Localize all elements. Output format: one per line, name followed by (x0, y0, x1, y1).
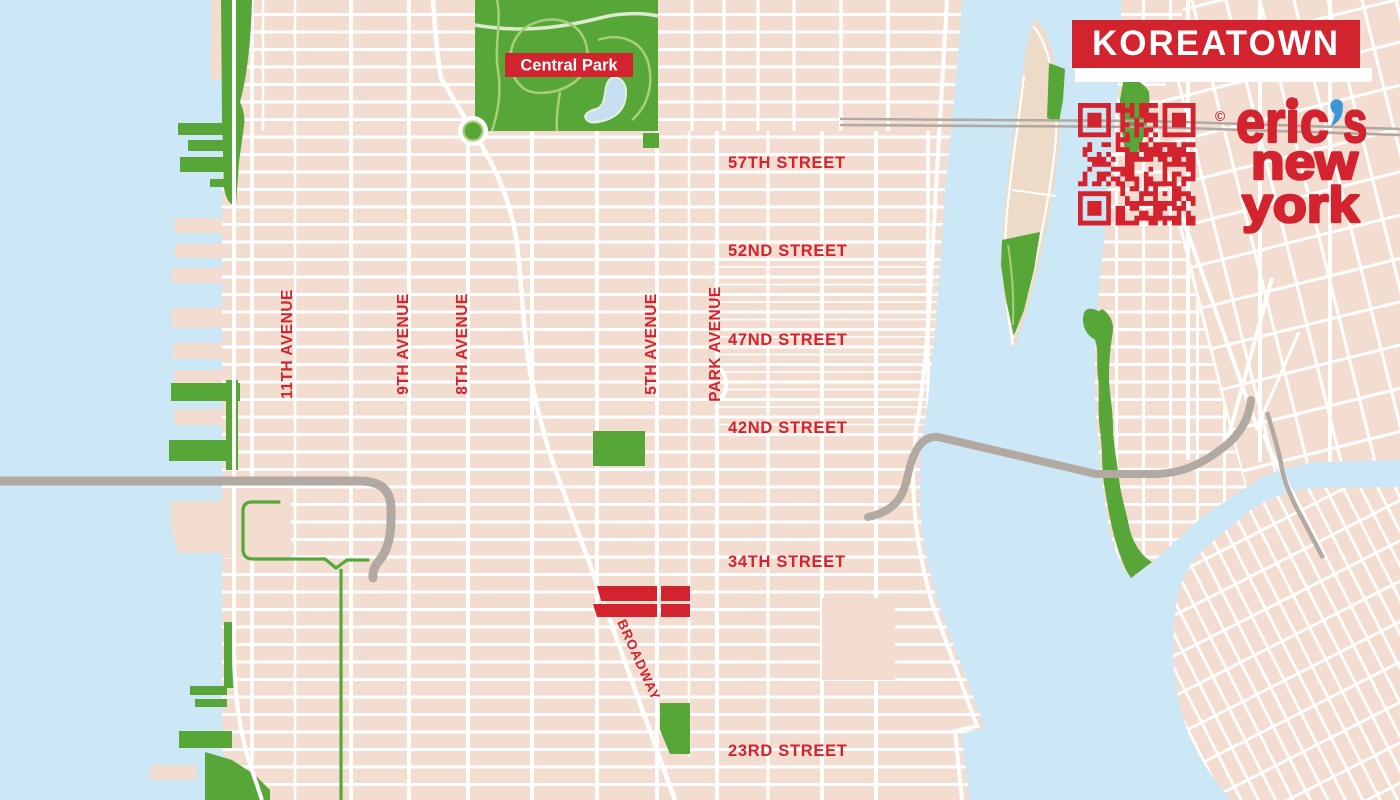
svg-text:©: © (1215, 108, 1226, 124)
svg-text:york: york (1242, 178, 1360, 234)
svg-text:47ND STREET: 47ND STREET (728, 331, 848, 349)
svg-text:9TH AVENUE: 9TH AVENUE (395, 293, 412, 394)
svg-text:KOREATOWN: KOREATOWN (1092, 24, 1340, 63)
svg-text:11TH AVENUE: 11TH AVENUE (279, 289, 296, 399)
svg-text:42ND STREET: 42ND STREET (728, 419, 848, 437)
svg-text:34TH STREET: 34TH STREET (728, 553, 846, 571)
svg-text:5TH AVENUE: 5TH AVENUE (643, 293, 660, 394)
svg-text:PARK AVENUE: PARK AVENUE (707, 286, 724, 401)
svg-text:57TH STREET: 57TH STREET (728, 154, 846, 172)
svg-text:Central Park: Central Park (520, 57, 618, 75)
svg-text:23RD STREET: 23RD STREET (728, 742, 848, 760)
svg-text:52ND STREET: 52ND STREET (728, 242, 848, 260)
svg-text:8TH AVENUE: 8TH AVENUE (454, 293, 471, 394)
